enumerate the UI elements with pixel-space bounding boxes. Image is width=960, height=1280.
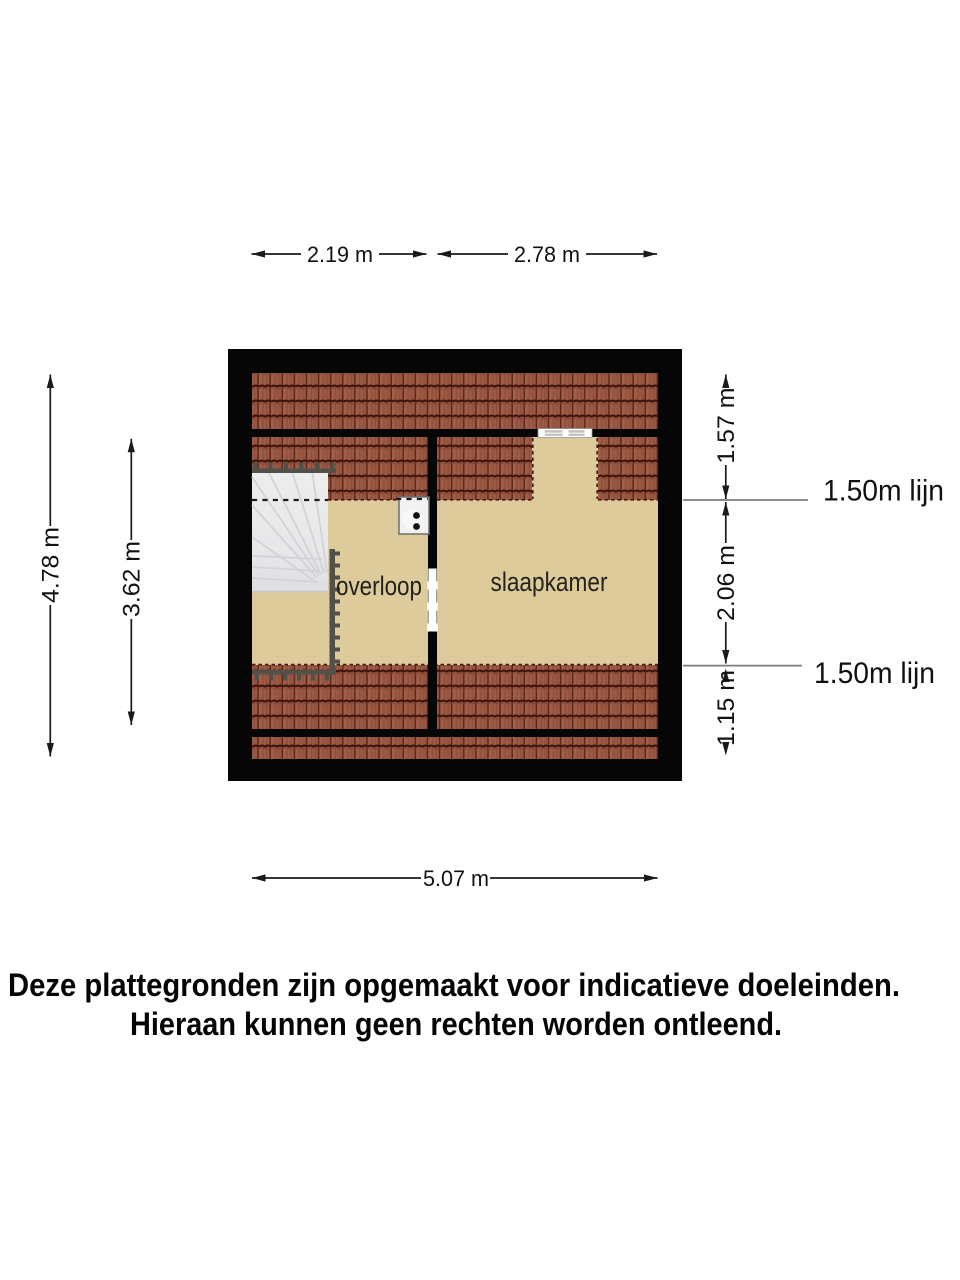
svg-text:2.06 m: 2.06 m xyxy=(713,545,740,621)
svg-text:Deze plattegronden zijn opgema: Deze plattegronden zijn opgemaakt voor i… xyxy=(8,967,900,1003)
svg-text:overloop: overloop xyxy=(336,571,422,601)
svg-text:2.19 m: 2.19 m xyxy=(307,242,373,267)
svg-text:Hieraan kunnen geen rechten wo: Hieraan kunnen geen rechten worden ontle… xyxy=(130,1006,782,1042)
svg-text:3.62 m: 3.62 m xyxy=(119,541,146,617)
svg-text:4.78 m: 4.78 m xyxy=(38,527,65,603)
svg-text:1.57 m: 1.57 m xyxy=(713,388,740,464)
svg-text:slaapkamer: slaapkamer xyxy=(491,567,608,597)
svg-text:1.50m lijn: 1.50m lijn xyxy=(814,657,935,690)
svg-text:5.07 m: 5.07 m xyxy=(423,866,489,891)
svg-text:1.15 m: 1.15 m xyxy=(713,670,740,746)
svg-text:2.78 m: 2.78 m xyxy=(514,242,580,267)
svg-text:1.50m lijn: 1.50m lijn xyxy=(823,475,944,508)
